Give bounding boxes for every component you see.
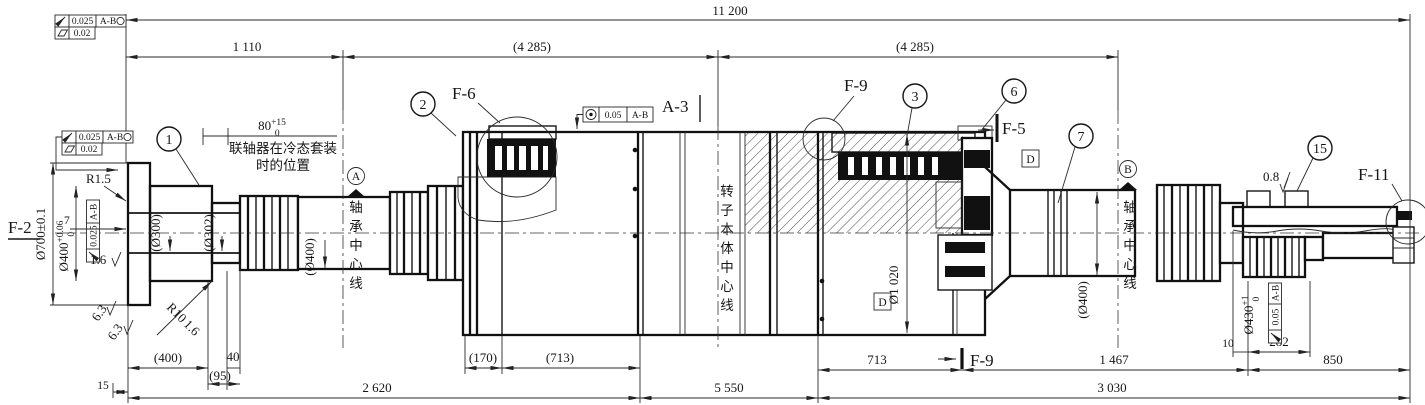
dim-170: (170) xyxy=(469,350,497,365)
tf3-datum: A-B xyxy=(90,204,100,220)
balloon-15-number: 15 xyxy=(1313,142,1327,157)
tf4-datum: A-B xyxy=(632,111,648,121)
tf2b-value: 0.02 xyxy=(81,145,98,155)
dim-4285-right: (4 285) xyxy=(896,39,934,54)
datum-d-letter: D xyxy=(1026,154,1034,166)
tf2-datum: A-B xyxy=(107,133,123,143)
balloon-2-number: 2 xyxy=(420,98,427,113)
label-a3: A-3 xyxy=(662,97,688,116)
label-f9-top: F-9 xyxy=(844,76,868,95)
finish-08: 0.8 xyxy=(1263,169,1279,184)
dim-95: (95) xyxy=(209,368,231,383)
dim-4285-left: (4 285) xyxy=(513,39,551,54)
note-rotor-centerline: 转子本体中心线 xyxy=(720,184,734,313)
label-f6: F-6 xyxy=(452,84,476,103)
balloon-7-number: 7 xyxy=(1078,130,1085,145)
tf1-value: 0.025 xyxy=(72,17,94,27)
datum-a-letter: A xyxy=(352,171,361,183)
tf5-value: 0.05 xyxy=(1272,308,1282,325)
vent-hole xyxy=(820,279,825,284)
balloon-1-number: 1 xyxy=(166,133,173,148)
vent-hole xyxy=(633,187,638,192)
dim-10: 10 xyxy=(1222,338,1234,350)
dim-dia700: Ø700±0.1 xyxy=(33,208,48,260)
tf1b-value: 0.02 xyxy=(74,29,91,39)
datum-d-box-upper: D xyxy=(1022,150,1039,167)
tf3-value: 0.025 xyxy=(90,225,100,247)
dim-15: 15 xyxy=(97,380,109,392)
dim-dia400-right: (Ø400) xyxy=(1075,281,1090,319)
dim-713: 713 xyxy=(867,352,887,367)
dim-dia1020: Ø1 020 xyxy=(886,266,901,305)
label-f2: F-2 xyxy=(8,218,32,237)
label-f5: F-5 xyxy=(1002,119,1026,138)
note-coupling-line1: 联轴器在冷态套装 xyxy=(229,141,337,156)
balloon-3-number: 3 xyxy=(912,90,919,105)
vent-hole xyxy=(633,234,638,239)
radius-r15: R1.5 xyxy=(86,171,111,186)
dim-dia400-left: (Ø400) xyxy=(302,238,317,276)
finish-16-left: 1.6 xyxy=(90,252,107,267)
dim-dia302: (Ø302) xyxy=(201,214,216,252)
tf4-value: 0.05 xyxy=(605,111,622,121)
dim-7: 7 xyxy=(64,215,70,227)
label-f11: F-11 xyxy=(1358,165,1390,184)
dim-850: 850 xyxy=(1323,352,1343,367)
dim-40: 40 xyxy=(227,349,240,364)
dim-1467: 1 467 xyxy=(1099,352,1129,367)
dim-3030: 3 030 xyxy=(1097,380,1126,395)
label-f9-bottom: F-9 xyxy=(970,351,994,370)
dim-dia300: (Ø300) xyxy=(148,214,163,252)
dim-1110: 1 110 xyxy=(233,39,262,54)
note-bearing-centerline-left: 轴承中心线 xyxy=(349,200,363,291)
engineering-drawing-rotor-shaft: 11 200 1 110 (4 285) (4 285) 80+150 联轴器在… xyxy=(0,0,1425,405)
dim-overall: 11 200 xyxy=(712,3,747,18)
tf5-datum: A-B xyxy=(1272,285,1282,301)
dim-2620: 2 620 xyxy=(362,380,391,395)
dim-400p: (400) xyxy=(154,350,182,365)
note-coupling-line2: 时的位置 xyxy=(256,158,310,173)
tolerance-frame-dia430: 0.05 A-B xyxy=(1269,283,1282,343)
tf1-datum: A-B xyxy=(100,17,116,27)
tf2-value: 0.025 xyxy=(79,133,101,143)
dim-5550: 5 550 xyxy=(714,380,743,395)
vent-hole xyxy=(820,317,825,322)
dim-713p: (713) xyxy=(546,350,574,365)
datum-b-letter: B xyxy=(1124,164,1132,176)
note-bearing-centerline-right: 轴承中心线 xyxy=(1123,200,1137,291)
vent-hole xyxy=(633,148,638,153)
balloon-6-number: 6 xyxy=(1011,85,1018,100)
